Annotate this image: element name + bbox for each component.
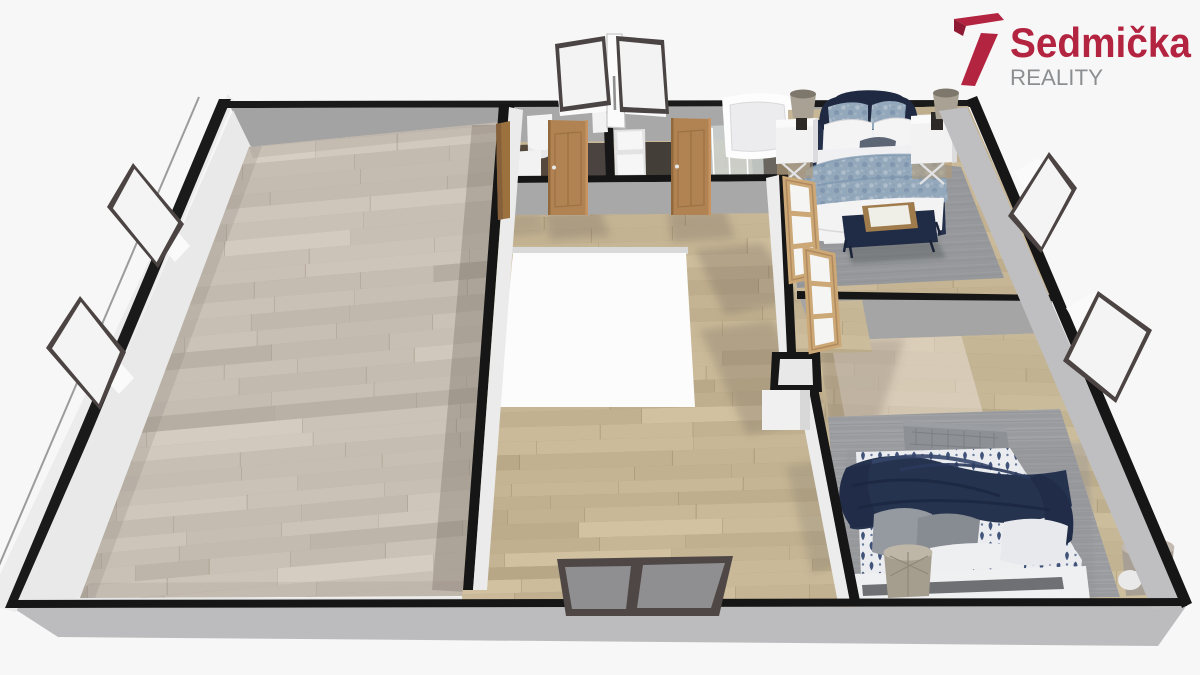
- svg-text:REALITY: REALITY: [1010, 65, 1103, 90]
- svg-text:Sedmička: Sedmička: [1010, 19, 1192, 66]
